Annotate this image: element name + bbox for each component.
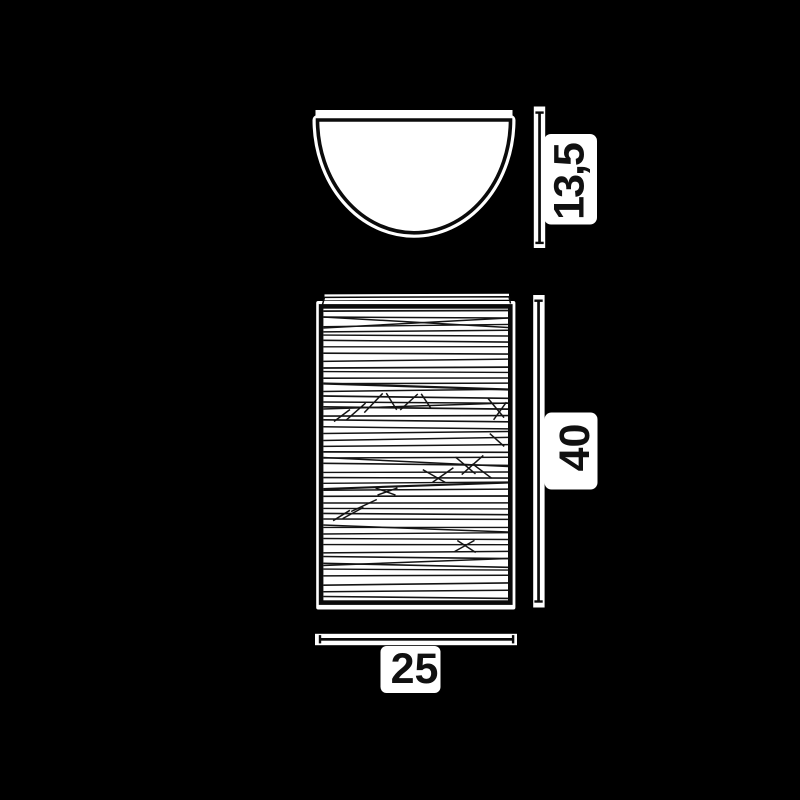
svg-text:13,5: 13,5	[545, 143, 593, 220]
svg-text:25: 25	[391, 645, 439, 693]
svg-text:40: 40	[551, 424, 599, 472]
